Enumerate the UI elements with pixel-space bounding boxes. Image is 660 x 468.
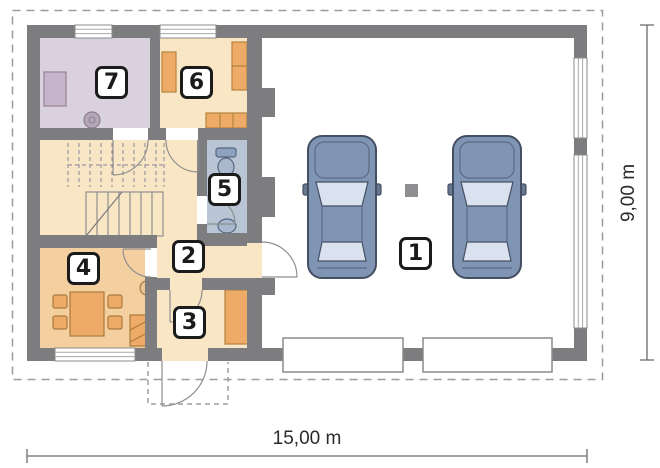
wall [148,128,166,140]
chair-icon [108,316,122,329]
floor-plan: 1 2 3 4 5 6 7 15,00 m 9,00 m [0,0,660,468]
entrance-threshold [162,348,208,361]
wall [157,278,170,290]
chair-icon [108,295,122,308]
chair-icon [53,316,67,329]
washer-icon [44,72,66,106]
wardrobe-icon [162,52,176,92]
wardrobe-icon [225,290,248,344]
room-label-4: 4 [67,252,100,285]
cabinet-icon [232,66,247,90]
wall-garage-post [403,348,423,361]
wall [216,25,587,38]
wall-pilaster [262,88,275,117]
garage-door-panel [423,338,552,372]
room-label-1: 1 [399,237,432,270]
wall [574,25,587,58]
wall-pilaster [262,177,275,217]
toilet-icon [216,148,236,157]
window [160,25,216,38]
room-label-3: 3 [173,306,206,339]
wall [198,128,247,140]
window [574,58,587,138]
wall [40,128,113,140]
garage-pillar [405,184,418,197]
room-label-7: 7 [95,66,128,99]
garage-door-threshold [247,243,262,278]
window [55,348,135,361]
dining-table-icon [70,292,104,336]
dimension-line-height [640,25,654,360]
wall-divider [247,38,262,243]
cabinet-icon [232,42,247,66]
wall [145,277,157,348]
wall [202,278,247,290]
window [574,155,587,328]
wall [27,38,40,361]
window [75,25,112,38]
drain-icon [84,112,100,128]
sink-icon [218,219,236,233]
room-label-2: 2 [172,240,205,273]
wall [574,138,587,155]
chair-icon [53,295,67,308]
wall [27,348,55,361]
dimension-width-label: 15,00 m [252,428,362,452]
wall [574,328,587,361]
wall [112,25,160,38]
room-label-6: 6 [180,66,213,99]
wall [150,38,160,128]
entrance-door [162,361,207,406]
car-top-view-icon [448,136,526,278]
cabinet-icon [206,113,247,128]
wall-divider [247,278,262,348]
wall-pilaster [262,278,275,295]
wall [197,224,207,233]
wall [27,25,75,38]
wall [208,348,283,361]
room-label-5: 5 [208,173,241,206]
garage-door-panel [283,338,403,372]
car-top-view-icon [303,136,381,278]
dimension-height-label: 9,00 m [618,148,642,238]
wall [135,348,162,361]
wall [40,235,157,248]
